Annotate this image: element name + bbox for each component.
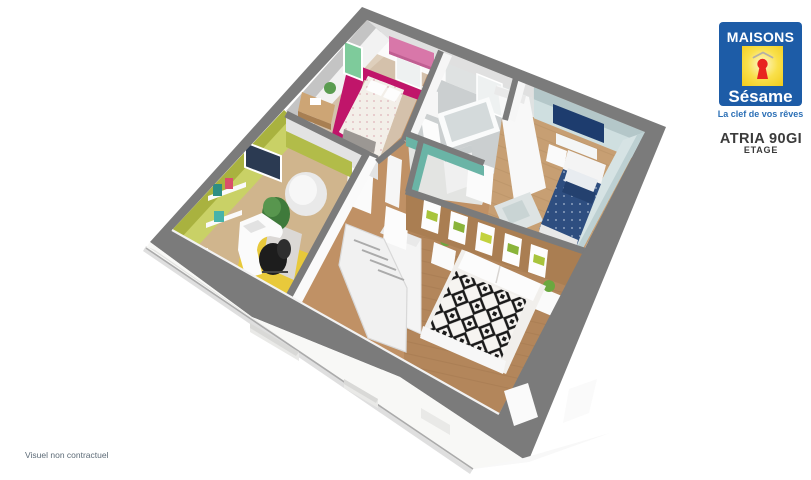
svg-text:Visuel non contractuel: Visuel non contractuel [25, 450, 109, 460]
svg-text:ETAGE: ETAGE [744, 145, 778, 155]
svg-text:La clef de vos rêves: La clef de vos rêves [718, 109, 804, 119]
svg-text:MAISONS: MAISONS [727, 29, 794, 45]
svg-text:Sésame: Sésame [728, 87, 792, 106]
